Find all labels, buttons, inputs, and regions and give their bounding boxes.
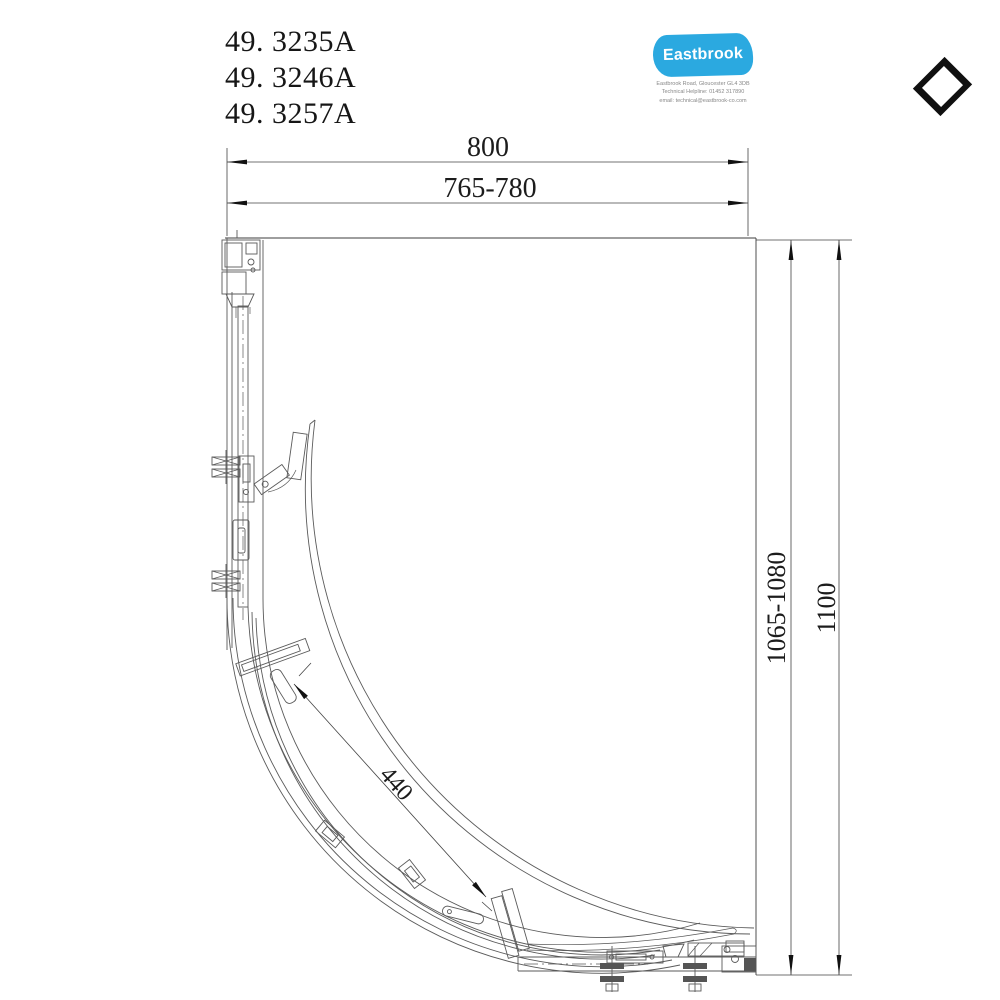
drawing-sheet: 49. 3235A 49. 3246A 49. 3257A Eastbrook … bbox=[0, 0, 1000, 1000]
dim-width-overall: 800 bbox=[467, 132, 509, 163]
enclosure-outline bbox=[225, 230, 756, 975]
floor-clamp-right bbox=[683, 946, 707, 992]
bottom-right-corner-bracket bbox=[722, 941, 756, 972]
panel-bracket bbox=[239, 456, 254, 502]
plan-drawing: 800 765-780 1065-1080 1100 bbox=[0, 0, 1000, 1000]
radius-dimension: 440 bbox=[294, 663, 492, 911]
dim-height-adjust: 1065-1080 bbox=[762, 552, 791, 665]
curve-roller-a bbox=[316, 820, 345, 847]
wall-clamp-left-lower bbox=[212, 564, 240, 598]
right-dimension-lines: 1065-1080 1100 bbox=[756, 240, 852, 975]
dim-door-radius: 440 bbox=[374, 762, 417, 806]
handle-slot bbox=[233, 520, 249, 560]
wall-clamp-left-upper bbox=[212, 450, 240, 484]
roller-bracket bbox=[254, 432, 307, 494]
floor-clamp-left bbox=[600, 946, 624, 992]
door1-stile bbox=[236, 638, 310, 705]
top-dimension-lines: 800 765-780 bbox=[227, 132, 748, 236]
dim-width-adjust: 765-780 bbox=[443, 173, 536, 204]
hardware-details bbox=[212, 240, 756, 992]
dim-height-overall: 1100 bbox=[812, 582, 841, 633]
curve-roller-b bbox=[398, 859, 425, 888]
